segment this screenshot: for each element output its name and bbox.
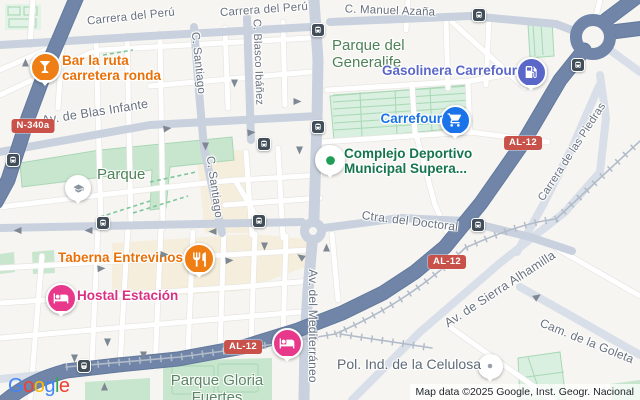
map-overlay: Carrera del PerúCarrera del PerúC. Manue… bbox=[0, 0, 640, 400]
bus-glyph bbox=[9, 156, 17, 164]
bus-stop-icon[interactable] bbox=[96, 216, 110, 230]
poi-pin-hostal-estacion[interactable] bbox=[46, 283, 77, 314]
street-label: Carrera de las Piedras bbox=[536, 101, 608, 204]
area-label-line: Fuertes bbox=[171, 390, 264, 400]
poi-pin-hotel-unnamed[interactable] bbox=[272, 328, 303, 359]
area-label-parque-gloria-fuertes: Parque GloriaFuertes bbox=[171, 373, 264, 400]
school-icon bbox=[73, 183, 84, 194]
google-logo-letter: g bbox=[44, 375, 55, 397]
poi-label-line: Municipal Supera... bbox=[344, 162, 472, 177]
poi-label-line: Hostal Estación bbox=[77, 289, 178, 304]
bus-glyph bbox=[474, 221, 482, 229]
map-canvas[interactable]: Carrera del PerúCarrera del PerúC. Manue… bbox=[0, 0, 640, 400]
bus-stop-icon[interactable] bbox=[257, 137, 271, 151]
restaurant-icon bbox=[191, 251, 208, 268]
poi-label-line: carretera ronda bbox=[62, 69, 161, 84]
poi-pin-complejo-deportivo[interactable] bbox=[315, 145, 345, 175]
poi-label-pol-ind-de-la-celulosa[interactable]: Pol. Ind. de la Celulosa bbox=[337, 357, 481, 372]
cart-icon bbox=[447, 112, 463, 128]
fuel-icon bbox=[523, 64, 539, 80]
street-label: C. Santiago bbox=[204, 155, 225, 218]
street-label: Av. del Mediterráneo bbox=[306, 269, 320, 383]
route-badge-al-12: AL-12 bbox=[224, 340, 262, 354]
poi-label-complejo-deportivo[interactable]: Complejo DeportivoMunicipal Supera... bbox=[344, 147, 472, 177]
google-logo[interactable]: Google bbox=[8, 375, 70, 398]
poi-pin-taberna-entrevinos[interactable] bbox=[183, 243, 215, 275]
train-station-icon[interactable] bbox=[77, 359, 91, 373]
poi-label-line: Pol. Ind. de la Celulosa bbox=[337, 357, 481, 372]
google-logo-letter: e bbox=[59, 375, 70, 397]
street-label: Cam. de la Goleta bbox=[538, 316, 636, 366]
poi-label-gasolinera-carrefour[interactable]: Gasolinera Carrefour bbox=[382, 64, 517, 79]
route-badge-al-12: AL-12 bbox=[504, 136, 542, 150]
street-label: Ctra. del Doctoral bbox=[361, 208, 459, 234]
train-glyph bbox=[80, 362, 88, 370]
bus-glyph bbox=[255, 217, 263, 225]
area-label-line: Parque del bbox=[332, 38, 405, 55]
poi-label-line: Gasolinera Carrefour bbox=[382, 64, 517, 79]
poi-pin-school[interactable] bbox=[65, 175, 91, 201]
bus-glyph bbox=[574, 61, 582, 69]
street-label: C. Manuel Azaña bbox=[345, 3, 436, 18]
route-badge-n-340a: N-340a bbox=[12, 119, 55, 133]
bus-glyph bbox=[314, 123, 322, 131]
poi-label-line: Complejo Deportivo bbox=[344, 147, 472, 162]
bed-icon bbox=[279, 335, 295, 351]
bus-stop-icon[interactable] bbox=[571, 58, 585, 72]
poi-pin-pol-ind-de-la-celulosa[interactable] bbox=[478, 354, 503, 379]
street-label: Carrera del Perú bbox=[87, 6, 176, 27]
dot-icon bbox=[323, 153, 338, 168]
area-label-parque: Parque bbox=[97, 167, 145, 184]
bus-glyph bbox=[314, 26, 322, 34]
street-label: Av. de Blas Infante bbox=[41, 97, 149, 128]
area-label-line: Parque Gloria bbox=[171, 373, 264, 390]
area-label-line: Parque bbox=[97, 167, 145, 184]
map-attribution: Map data ©2025 Google, Inst. Geogr. Naci… bbox=[410, 384, 640, 400]
bus-stop-icon[interactable] bbox=[311, 23, 325, 37]
dot-small-icon bbox=[485, 361, 495, 371]
google-logo-letter: o bbox=[34, 375, 45, 397]
poi-label-carrefour[interactable]: Carrefour bbox=[380, 112, 442, 127]
bus-stop-icon[interactable] bbox=[6, 153, 20, 167]
street-label: C. Santiago bbox=[189, 31, 207, 94]
bus-glyph bbox=[99, 219, 107, 227]
route-badge-al-12: AL-12 bbox=[428, 255, 466, 269]
bus-stop-icon[interactable] bbox=[311, 120, 325, 134]
bed-icon bbox=[53, 290, 69, 306]
poi-label-line: Carrefour bbox=[380, 112, 442, 127]
bus-stop-icon[interactable] bbox=[252, 214, 266, 228]
poi-label-hostal-estacion[interactable]: Hostal Estación bbox=[77, 289, 178, 304]
poi-pin-carrefour[interactable] bbox=[440, 105, 471, 136]
bus-glyph bbox=[475, 11, 483, 19]
cocktail-icon bbox=[37, 59, 53, 75]
poi-pin-bar-la-ruta[interactable] bbox=[30, 52, 61, 83]
google-logo-letter: o bbox=[23, 375, 34, 397]
bus-stop-icon[interactable] bbox=[471, 218, 485, 232]
bus-stop-icon[interactable] bbox=[472, 8, 486, 22]
street-label: Carrera del Perú bbox=[220, 1, 309, 19]
poi-pin-gasolinera-carrefour[interactable] bbox=[516, 57, 547, 88]
google-logo-letter: G bbox=[8, 375, 23, 397]
poi-label-line: Bar la ruta bbox=[62, 54, 161, 69]
bus-glyph bbox=[260, 140, 268, 148]
poi-label-bar-la-ruta[interactable]: Bar la rutacarretera ronda bbox=[62, 54, 161, 84]
street-label: C. Blasco Ibáñez bbox=[250, 19, 265, 106]
